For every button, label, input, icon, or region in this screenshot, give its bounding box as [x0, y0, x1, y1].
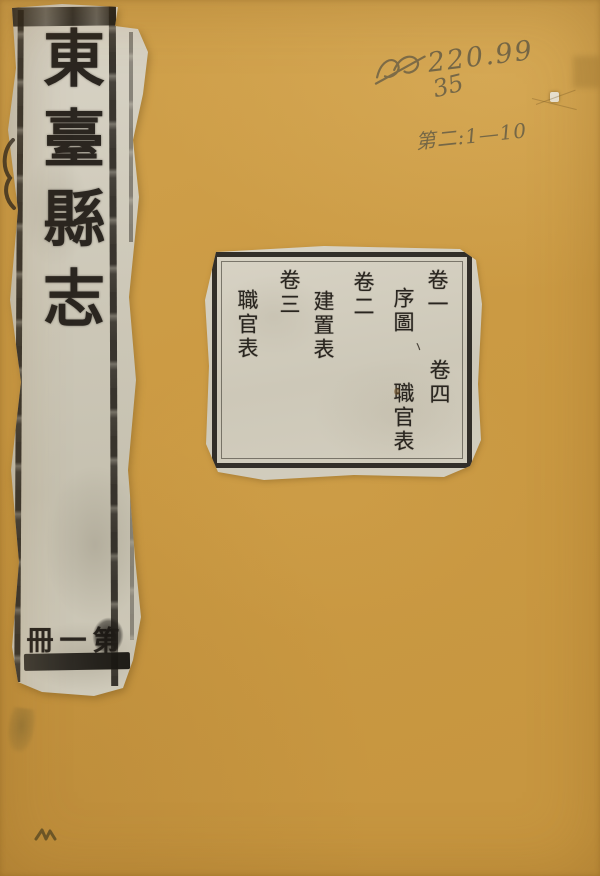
spine-paper: 東臺縣志 第一冊 — [2, 2, 152, 698]
volume-note: 第二:1—10 — [414, 114, 528, 155]
contents-entry-title: 序圖 — [388, 287, 418, 335]
contents-entry-volume: 卷三 — [274, 269, 304, 317]
spine-left-border-line — [14, 10, 24, 682]
pencil-scribble — [370, 46, 432, 90]
contents-entry-title: 職官表 — [232, 289, 262, 361]
contents-label: 卷一 序圖 卷四 職官表 卷二 建置表 卷三 職官表 ヽ — [204, 246, 482, 480]
contents-entry-title: 建置表 — [308, 290, 338, 362]
contents-entry-volume: 卷一 — [422, 269, 452, 317]
spine-outer-line-fragment — [129, 32, 133, 242]
contents-entry-title: 職官表 — [388, 382, 418, 454]
stain-blotch — [5, 706, 37, 753]
contents-label-paper: 卷一 序圖 卷四 職官表 卷二 建置表 卷三 職官表 ヽ — [204, 246, 482, 480]
contents-entry-volume: 卷二 — [348, 271, 378, 319]
corner-shade — [573, 56, 600, 88]
shelf-number: 35 — [430, 69, 466, 104]
stain-speck — [34, 826, 58, 846]
spine-top-border — [8, 6, 116, 26]
spine-bottom-bar — [24, 652, 130, 671]
contents-entry-volume: 卷四 — [424, 359, 454, 407]
stain-dot — [394, 388, 400, 395]
spine-title: 東臺縣志 — [34, 26, 102, 394]
edge-ink-mark — [0, 138, 18, 214]
spine-right-border-line — [109, 4, 118, 686]
book-cover: 東臺縣志 第一冊 卷一 序圖 卷四 職官表 卷二 建置表 卷三 職官表 ヽ — [0, 0, 600, 876]
spine-title-strip: 東臺縣志 第一冊 — [2, 2, 152, 698]
